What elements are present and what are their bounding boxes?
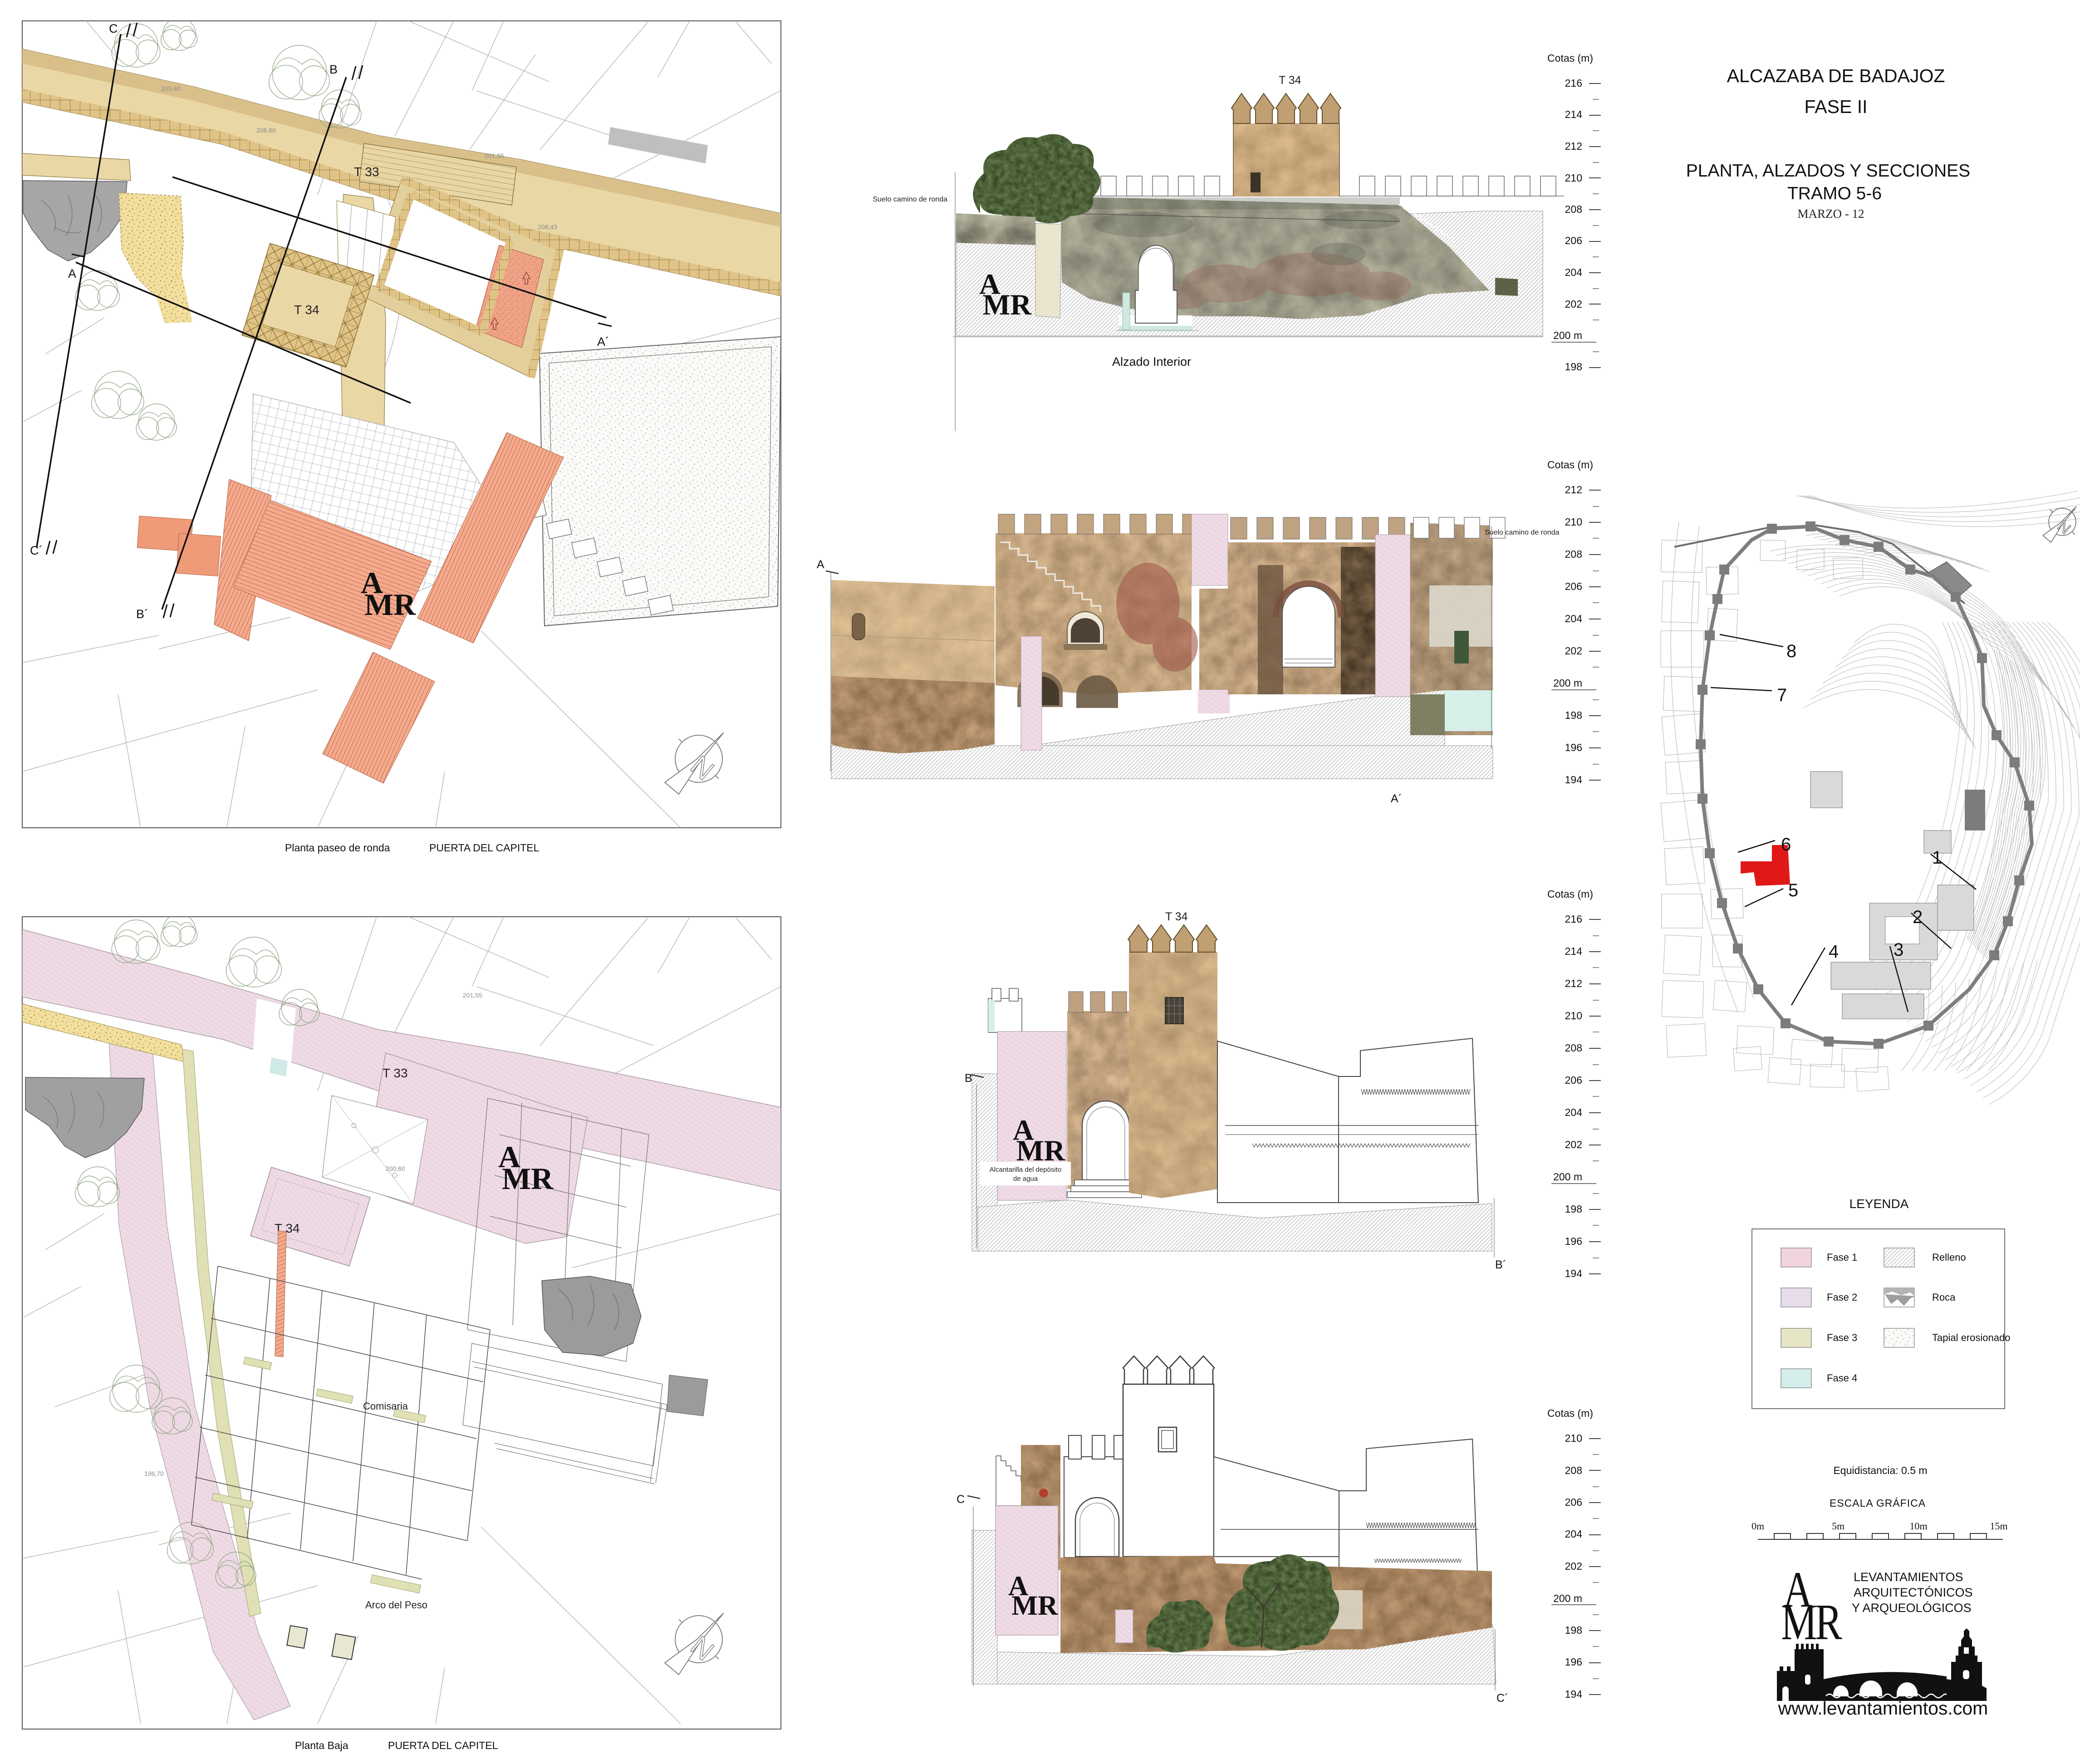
svg-text:196: 196 (1565, 1235, 1582, 1247)
svg-text:Suelo camino de ronda: Suelo camino de ronda (873, 196, 947, 203)
svg-text:201,55: 201,55 (485, 152, 504, 159)
svg-text:PUERTA DEL CAPITEL: PUERTA DEL CAPITEL (429, 842, 540, 854)
svg-text:Fase 3: Fase 3 (1827, 1332, 1857, 1343)
svg-text:3: 3 (1894, 940, 1903, 960)
svg-text:MR: MR (364, 587, 416, 622)
svg-text:Cotas (m): Cotas (m) (1547, 52, 1593, 64)
svg-text:LEVANTAMIENTOS: LEVANTAMIENTOS (1854, 1570, 1963, 1584)
svg-text:210: 210 (1565, 1010, 1582, 1022)
svg-text:0m: 0m (1751, 1520, 1764, 1532)
svg-text:5: 5 (1788, 880, 1798, 900)
svg-text:198: 198 (1565, 1624, 1582, 1636)
svg-text:10m: 10m (1909, 1520, 1927, 1532)
svg-text:212: 212 (1565, 484, 1582, 496)
svg-text:B: B (965, 1072, 972, 1085)
svg-text:201,55: 201,55 (463, 992, 482, 999)
svg-text:Cotas (m): Cotas (m) (1547, 1407, 1593, 1419)
svg-text:216: 216 (1565, 77, 1582, 89)
svg-text:6: 6 (1781, 835, 1791, 855)
svg-text:1: 1 (1932, 848, 1942, 868)
svg-text:202: 202 (1565, 645, 1582, 657)
svg-text:210: 210 (1565, 1432, 1582, 1444)
svg-text:TRAMO 5-6: TRAMO 5-6 (1787, 184, 1882, 203)
svg-text:T 34: T 34 (1279, 74, 1301, 87)
svg-text:208: 208 (1565, 1042, 1582, 1054)
svg-text:202: 202 (1565, 1139, 1582, 1150)
svg-text:212: 212 (1565, 978, 1582, 989)
svg-text:Relleno: Relleno (1932, 1252, 1966, 1263)
svg-text:7: 7 (1777, 685, 1787, 705)
svg-text:208: 208 (1565, 1464, 1582, 1476)
svg-text:A´: A´ (597, 335, 609, 349)
svg-text:A: A (817, 558, 824, 571)
svg-text:204: 204 (1565, 1528, 1583, 1540)
svg-text:B´: B´ (1495, 1258, 1506, 1271)
svg-text:T 34: T 34 (294, 303, 319, 317)
svg-text:200,60: 200,60 (386, 1165, 405, 1172)
svg-text:212: 212 (1565, 140, 1582, 152)
svg-text:205,60: 205,60 (161, 85, 181, 92)
svg-text:210: 210 (1565, 516, 1582, 528)
svg-text:194: 194 (1565, 774, 1583, 786)
svg-text:Tapial erosionado: Tapial erosionado (1932, 1332, 2010, 1343)
svg-text:Comisaria: Comisaria (363, 1400, 408, 1412)
svg-text:T 33: T 33 (383, 1066, 408, 1080)
svg-text:194: 194 (1565, 1688, 1583, 1700)
svg-text:208: 208 (1565, 548, 1582, 560)
svg-text:T 34: T 34 (1165, 910, 1188, 923)
svg-text:A´: A´ (1391, 792, 1402, 805)
svg-text:210: 210 (1565, 172, 1582, 184)
svg-text:15m: 15m (1990, 1520, 2007, 1532)
svg-text:208,43: 208,43 (538, 223, 557, 231)
svg-text:MR: MR (983, 288, 1032, 321)
svg-text:196,70: 196,70 (144, 1470, 164, 1477)
svg-text:194: 194 (1565, 1268, 1583, 1279)
svg-text:196: 196 (1565, 742, 1582, 753)
svg-text:R: R (1815, 1594, 1842, 1651)
svg-text:Alzado Interior: Alzado Interior (1112, 355, 1191, 369)
svg-text:Equidistancia: 0.5 m: Equidistancia: 0.5 m (1833, 1464, 1927, 1476)
svg-text:Roca: Roca (1932, 1292, 1956, 1303)
svg-text:198: 198 (1565, 709, 1582, 721)
svg-text:LEYENDA: LEYENDA (1849, 1197, 1909, 1211)
svg-text:206: 206 (1565, 580, 1582, 592)
svg-text:FASE II: FASE II (1805, 96, 1868, 117)
svg-text:216: 216 (1565, 913, 1582, 925)
svg-text:200 m: 200 m (1553, 1171, 1582, 1183)
svg-text:M: M (1781, 1594, 1817, 1651)
svg-text:204: 204 (1565, 613, 1583, 624)
svg-text:de agua: de agua (1013, 1175, 1038, 1183)
svg-text:200 m: 200 m (1553, 677, 1582, 689)
svg-text:196: 196 (1565, 1656, 1582, 1668)
svg-text:Cotas (m): Cotas (m) (1547, 888, 1593, 900)
svg-text:www.levantamientos.com: www.levantamientos.com (1778, 1698, 1988, 1719)
svg-text:T 33: T 33 (354, 165, 379, 179)
svg-text:208: 208 (1565, 203, 1582, 215)
svg-text:C´: C´ (30, 544, 43, 557)
svg-text:204: 204 (1565, 1106, 1583, 1118)
svg-text:208,60: 208,60 (256, 127, 276, 134)
svg-text:B´: B´ (136, 607, 148, 621)
svg-text:A: A (68, 267, 76, 280)
svg-text:C´: C´ (1496, 1692, 1508, 1705)
svg-text:200 m: 200 m (1553, 329, 1582, 341)
svg-text:214: 214 (1565, 108, 1583, 120)
svg-text:198: 198 (1565, 361, 1582, 373)
svg-text:Fase 2: Fase 2 (1827, 1292, 1857, 1303)
svg-text:Y ARQUEOLÓGICOS: Y ARQUEOLÓGICOS (1852, 1601, 1972, 1615)
svg-text:Alcantarilla del depósito: Alcantarilla del depósito (990, 1166, 1061, 1174)
svg-text:Fase 1: Fase 1 (1827, 1252, 1857, 1263)
svg-text:202: 202 (1565, 1560, 1582, 1572)
svg-text:200 m: 200 m (1553, 1592, 1582, 1604)
svg-text:C: C (109, 22, 118, 35)
svg-text:214: 214 (1565, 945, 1583, 957)
svg-text:ARQUITECTÓNICOS: ARQUITECTÓNICOS (1854, 1585, 1973, 1599)
svg-text:MR: MR (502, 1161, 554, 1196)
svg-text:Planta Baja: Planta Baja (295, 1739, 348, 1751)
svg-text:2: 2 (1913, 907, 1923, 927)
svg-text:206: 206 (1565, 235, 1582, 246)
svg-text:8: 8 (1786, 641, 1796, 661)
svg-text:MARZO - 12: MARZO - 12 (1798, 207, 1864, 221)
svg-text:Cotas (m): Cotas (m) (1547, 459, 1593, 471)
svg-text:202: 202 (1565, 298, 1582, 310)
svg-text:PUERTA DEL CAPITEL: PUERTA DEL CAPITEL (388, 1739, 498, 1751)
svg-text:ESCALA GRÁFICA: ESCALA GRÁFICA (1830, 1497, 1926, 1509)
svg-text:206: 206 (1565, 1074, 1582, 1086)
svg-text:5m: 5m (1832, 1520, 1845, 1532)
svg-text:204: 204 (1565, 266, 1583, 278)
svg-text:Arco del Peso: Arco del Peso (365, 1599, 427, 1611)
svg-text:4: 4 (1829, 942, 1839, 962)
svg-text:198: 198 (1565, 1203, 1582, 1215)
svg-text:Suelo camino de ronda: Suelo camino de ronda (1485, 529, 1560, 536)
svg-text:206: 206 (1565, 1496, 1582, 1508)
svg-text:Fase 4: Fase 4 (1827, 1372, 1857, 1384)
svg-text:MR: MR (1011, 1590, 1058, 1621)
svg-text:B: B (329, 63, 338, 76)
svg-text:Planta paseo de ronda: Planta paseo de ronda (285, 842, 390, 854)
svg-text:PLANTA, ALZADOS Y SECCIONES: PLANTA, ALZADOS Y SECCIONES (1686, 161, 1970, 181)
svg-text:C: C (957, 1493, 965, 1506)
svg-text:ALCAZABA DE BADAJOZ: ALCAZABA DE BADAJOZ (1727, 65, 1945, 86)
